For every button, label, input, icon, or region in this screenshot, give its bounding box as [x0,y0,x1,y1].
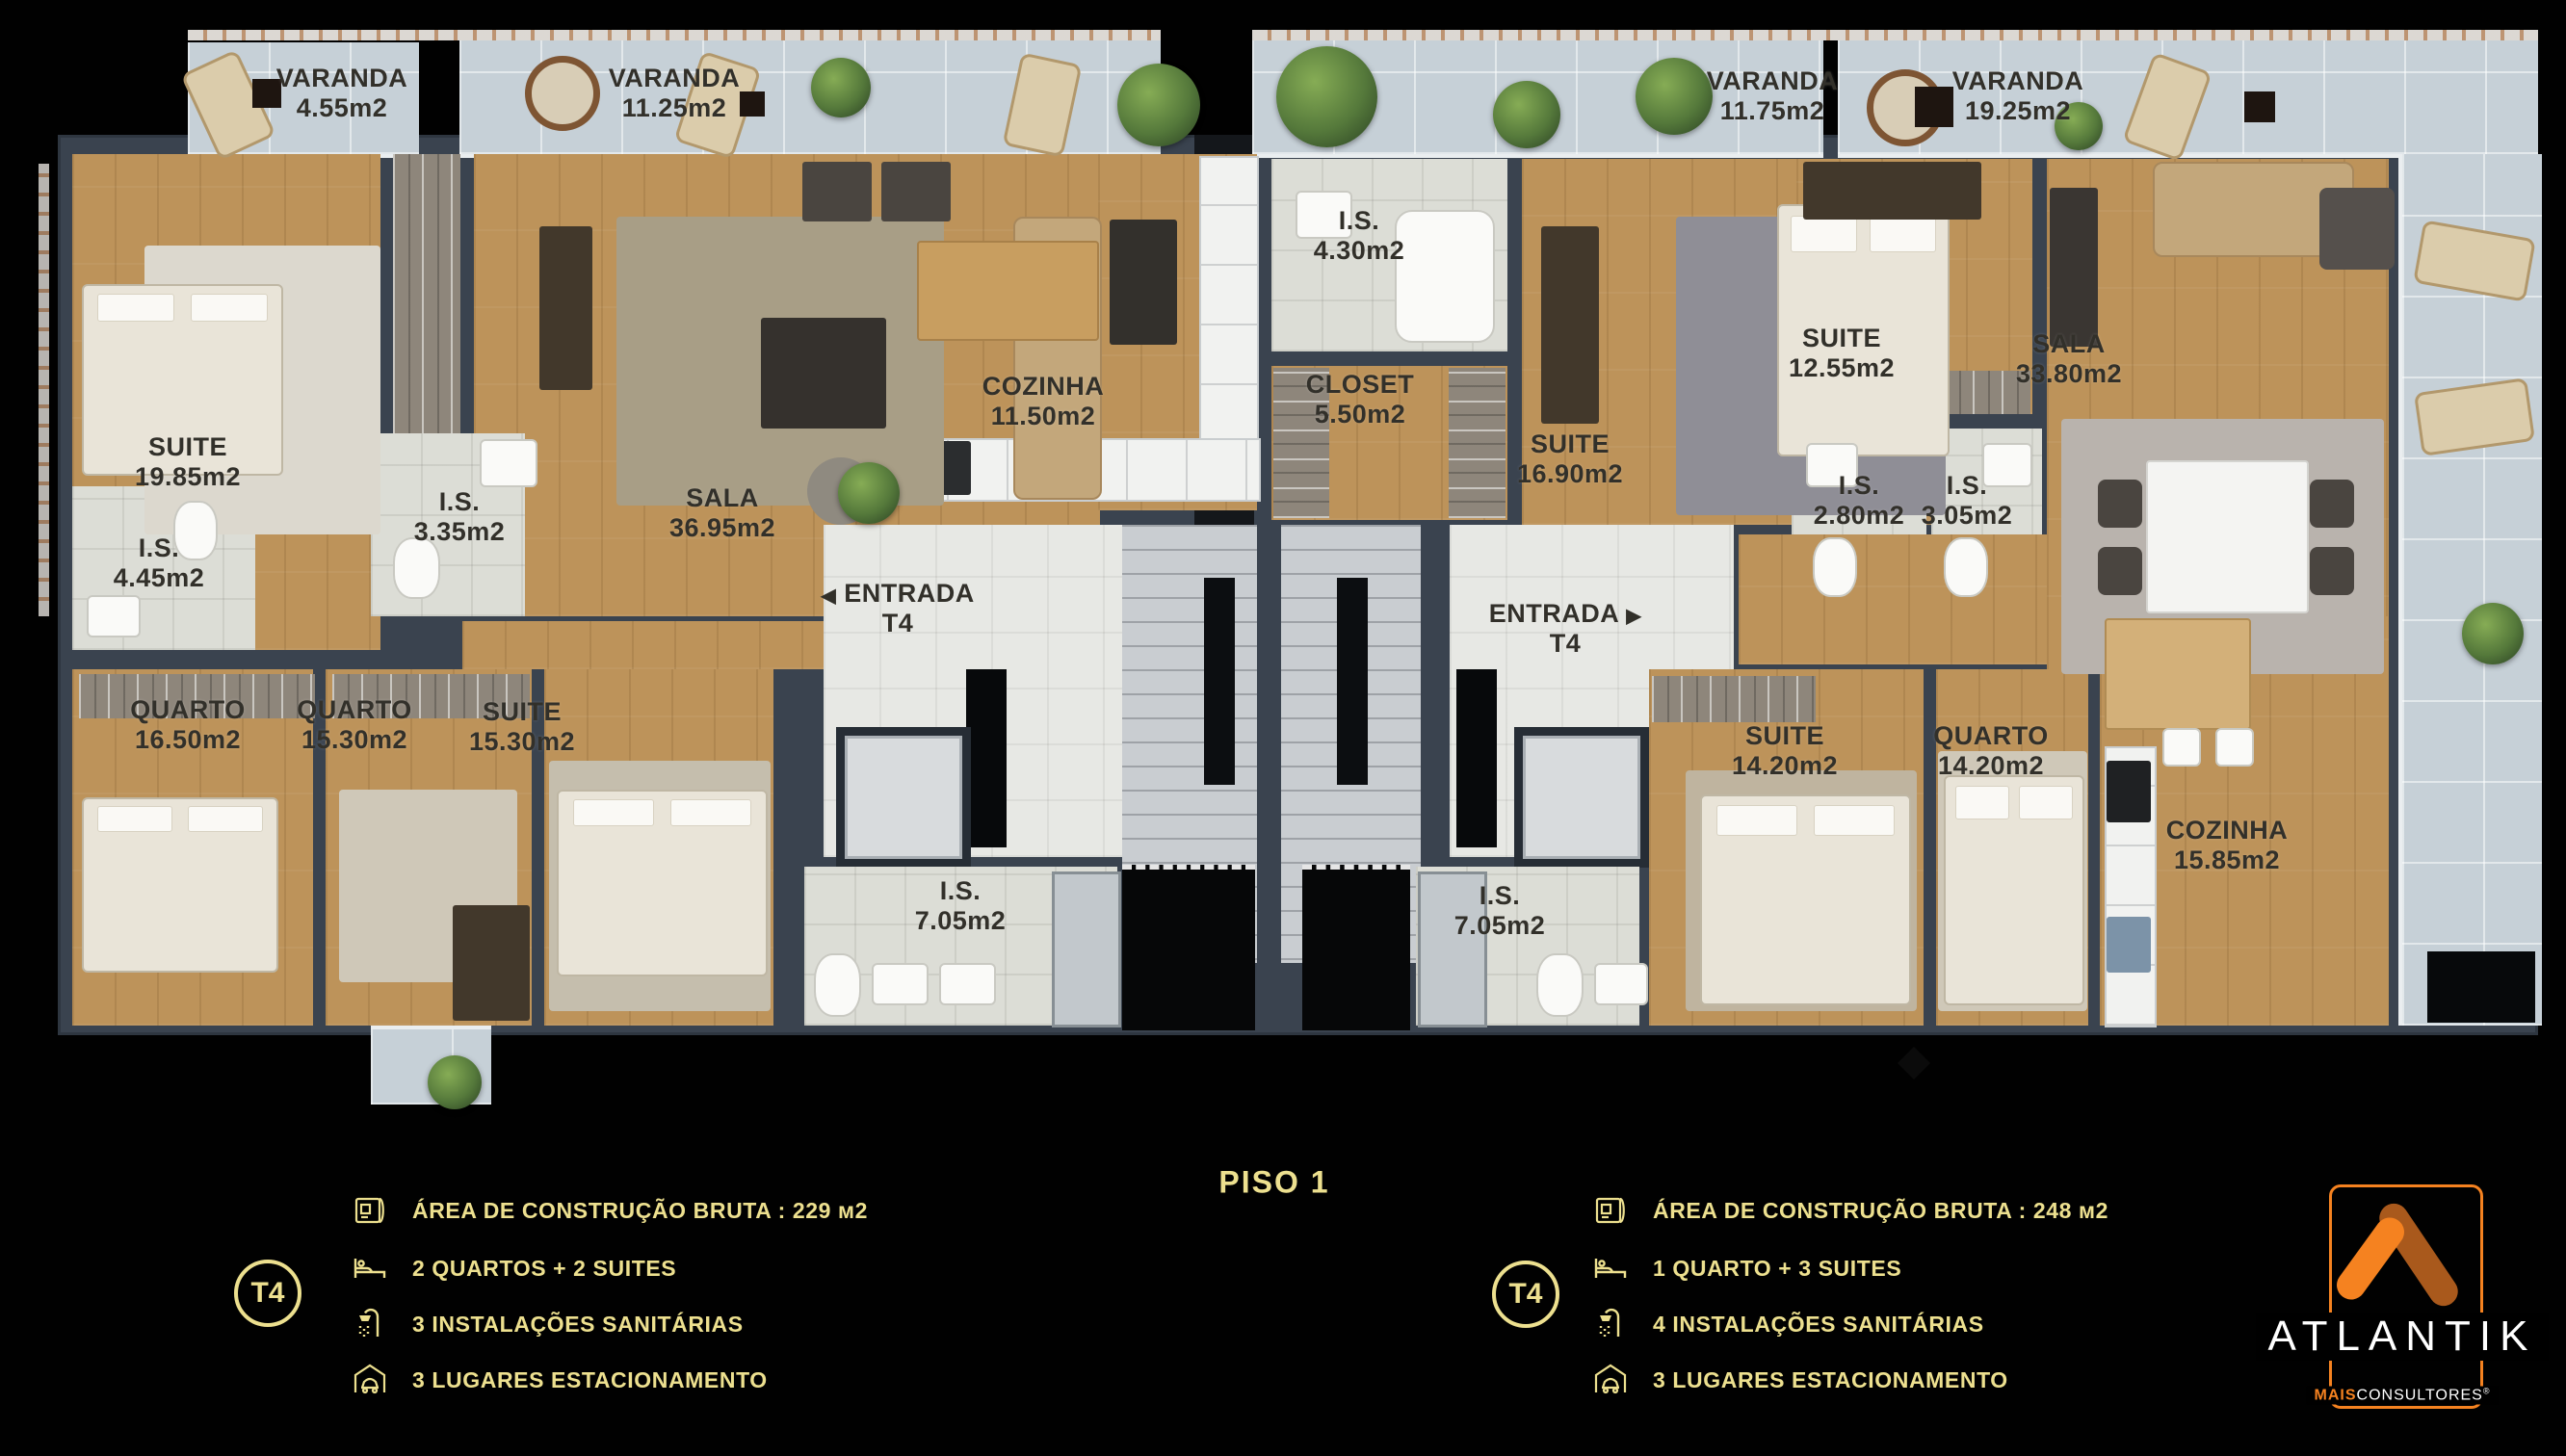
toilet [1536,953,1584,1017]
storage-box-terrace [2427,951,2535,1023]
cabinet [453,905,530,1021]
shower-icon [1589,1303,1632,1345]
garage-icon [349,1359,391,1401]
label-closet-550: CLOSET5.50m2 [1306,370,1415,429]
garage-icon [1589,1359,1632,1401]
label-cozinha-1585: COZINHA15.85m2 [2166,816,2289,875]
plant [1493,81,1560,148]
label-varanda-1125: VARANDA11.25m2 [609,64,741,123]
elevator-left-unit [836,727,971,868]
label-is-705-right: I.S.7.05m2 [1454,881,1546,941]
dining-chair [2098,547,2142,595]
blueprint-icon [1589,1189,1632,1232]
side-table [1915,87,1953,127]
label-is-705-left: I.S.7.05m2 [915,876,1007,936]
shower-left-unit [1052,871,1121,1027]
sink [1594,963,1648,1005]
brand-logo-mark [2352,1200,2454,1308]
bed-icon [349,1247,391,1289]
closet-corridor [393,154,460,433]
plant [838,462,900,524]
kitchen-cabinets-left-unit [1199,156,1259,447]
label-suite-1690: SUITE16.90m2 [1517,429,1623,489]
shower-icon [349,1303,391,1345]
handrail-left-unit [1204,578,1235,785]
armchair [881,162,951,221]
plant [1117,64,1200,146]
kitchen-chair [2215,728,2254,767]
label-entrada-left: ◀ ENTRADA T4 [821,579,974,638]
coffee-table [761,318,886,429]
legend-row: 3 INSTALAÇÕES SANITÁRIAS [349,1302,744,1346]
bathtub [1395,210,1495,343]
armchair [2319,188,2395,270]
label-is-430: I.S.4.30m2 [1314,206,1405,266]
legend-row: 3 LUGARES ESTACIONAMENTO [1589,1358,2008,1402]
label-sala-3380: SALA33.80m2 [2016,329,2122,389]
wardrobe [1652,676,1816,722]
legend-row: 1 QUARTO + 3 SUITES [1589,1246,1901,1290]
bed-furniture [557,790,768,976]
dining-table [2146,460,2309,613]
storage-box-left [1122,865,1255,1030]
entrance-arrow-icon: ◀ [821,585,836,607]
desk [1803,162,1981,220]
bed-icon [1589,1247,1632,1289]
label-is-445: I.S.4.45m2 [114,533,205,593]
brand-name: ATLANTIK [2256,1313,2548,1361]
label-varanda-455: VARANDA4.55m2 [276,64,408,123]
toilet [1944,537,1988,597]
hall-wardrobe-right-unit [1456,669,1497,847]
label-varanda-1175: VARANDA11.75m2 [1707,66,1839,126]
label-is-335: I.S.3.35m2 [414,487,506,547]
sink [87,595,141,637]
tv-cabinet [2050,188,2098,347]
label-quarto-1530: QUARTO15.30m2 [297,695,412,755]
storage-box-right [1302,865,1410,1030]
legend-row: ÁREA DE CONSTRUÇÃO BRUTA : 229 м2 [349,1188,868,1233]
armchair [802,162,872,221]
label-cozinha-1150: COZINHA11.50m2 [982,372,1105,431]
dimension-ticks-left [39,164,49,616]
closet-wardrobe-right [1449,368,1506,518]
dining-chair [2098,480,2142,528]
label-quarto-1420: QUARTO14.20m2 [1933,721,2049,781]
legend-row: 3 LUGARES ESTACIONAMENTO [349,1358,768,1402]
label-suite-1255: SUITE12.55m2 [1789,324,1895,383]
label-quarto-1650: QUARTO16.50m2 [130,695,246,755]
unit-badge-left: T4 [234,1260,301,1327]
toilet [1813,537,1857,597]
marker-icon [1898,1047,1930,1079]
plant [428,1055,482,1109]
hallway-left-unit [462,621,828,669]
dining-chair [2310,547,2354,595]
cooktop-right-unit [2107,761,2151,822]
toilet [814,953,861,1017]
console-table [1541,226,1599,424]
label-sala-3695: SALA36.95m2 [669,483,775,543]
label-suite-1420: SUITE14.20m2 [1732,721,1838,781]
floor-plan-canvas: VARANDA4.55m2 VARANDA11.25m2 SUITE19.85m… [0,0,2566,1456]
bed-furniture [82,797,278,973]
hanging-chair [525,56,600,131]
legend-row: 4 INSTALAÇÕES SANITÁRIAS [1589,1302,1984,1346]
unit-badge-right: T4 [1492,1261,1559,1328]
label-varanda-1925: VARANDA19.25m2 [1952,66,2084,126]
sink [939,963,996,1005]
plant [1636,58,1713,135]
sideboard [539,226,592,390]
kitchen-sink [2107,917,2151,973]
label-suite-1530: SUITE15.30m2 [469,697,575,757]
plant [2462,603,2524,664]
sink [872,963,929,1005]
kitchen-island-left-unit [1110,220,1177,345]
kitchen-table [2105,618,2251,730]
elevator-right-unit [1514,727,1649,868]
floor-title: PISO 1 [1218,1165,1329,1201]
side-table [2244,91,2275,122]
bed-furniture [1944,775,2084,1005]
handrail-right-unit [1337,578,1368,785]
dining-chair [2310,480,2354,528]
label-suite-1985: SUITE19.85m2 [135,432,241,492]
side-table [740,91,765,117]
dimension-ticks-top-right [1252,30,2538,40]
kitchen-chair [2162,728,2201,767]
label-is-305: I.S.3.05m2 [1922,471,2013,531]
hall-wardrobe-left-unit [966,669,1007,847]
dimension-ticks-top-left [188,30,1161,40]
bed-furniture [1700,794,1911,1005]
dining-table [917,241,1099,341]
label-is-280: I.S.2.80m2 [1814,471,1905,531]
hallway-right-unit [1739,534,2047,664]
plant [811,58,871,117]
blueprint-icon [349,1189,391,1232]
sink [480,439,537,487]
legend-row: ÁREA DE CONSTRUÇÃO BRUTA : 248 м2 [1589,1188,2108,1233]
brand-subtitle: MAISCONSULTORES® [2307,1387,2499,1405]
plant [1276,46,1377,147]
label-entrada-right: ENTRADA ▶ T4 [1489,599,1641,659]
legend-row: 2 QUARTOS + 2 SUITES [349,1246,676,1290]
entrance-arrow-icon: ▶ [1626,606,1641,627]
